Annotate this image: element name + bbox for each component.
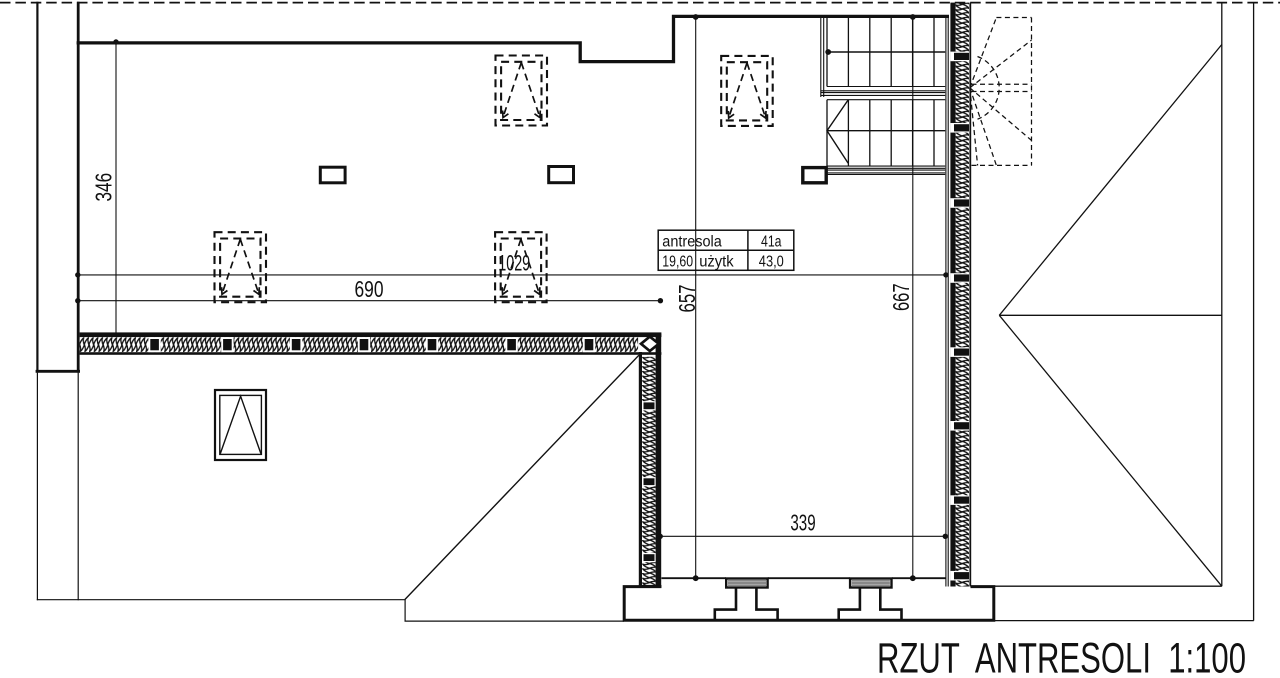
svg-text:19,60: 19,60 [662,254,693,271]
svg-text:43,0: 43,0 [759,254,784,271]
svg-text:667: 667 [888,284,914,312]
svg-text:346: 346 [90,173,116,202]
svg-text:1029: 1029 [498,250,530,275]
svg-text:użytk: użytk [699,254,734,271]
svg-text:41a: 41a [761,233,782,250]
svg-text:690: 690 [355,276,384,302]
svg-text:339: 339 [790,510,815,536]
svg-text:RZUT ANTRESOLI 1:100: RZUT ANTRESOLI 1:100 [877,636,1246,678]
svg-text:657: 657 [674,285,700,313]
svg-text:antresola: antresola [662,233,722,250]
